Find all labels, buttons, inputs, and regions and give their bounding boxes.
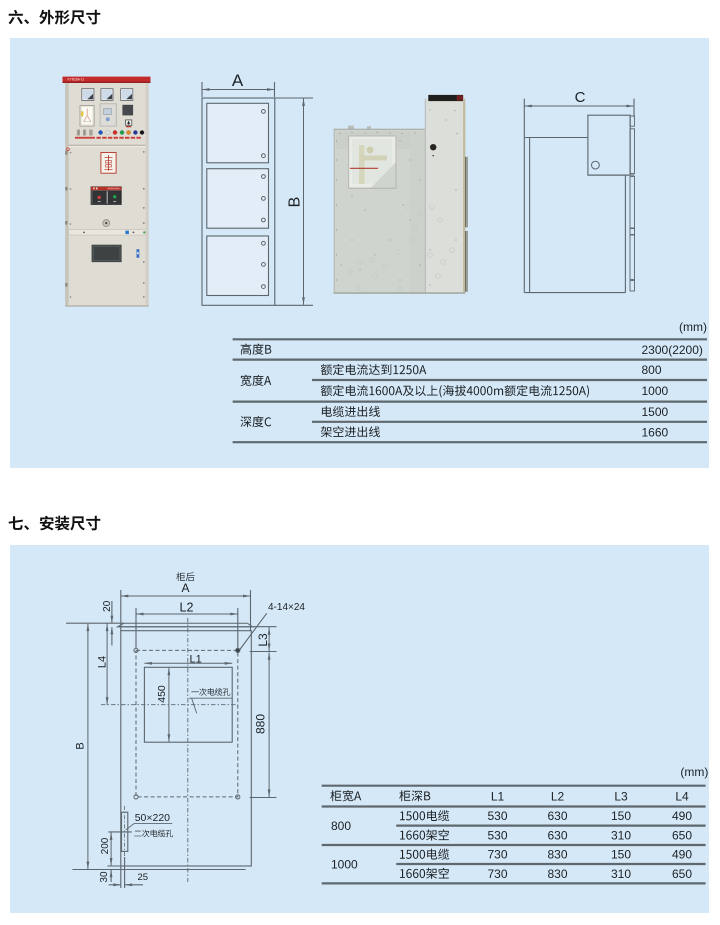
svg-text:B: B — [287, 197, 304, 208]
svg-text:50×220: 50×220 — [135, 812, 170, 824]
svg-text:30: 30 — [99, 871, 110, 883]
svg-text:20: 20 — [102, 600, 113, 612]
svg-text:800: 800 — [331, 819, 351, 833]
svg-text:25: 25 — [138, 872, 149, 883]
svg-text:4-14×24: 4-14×24 — [268, 602, 305, 613]
svg-text:730: 730 — [487, 867, 507, 881]
svg-text:(mm): (mm) — [680, 765, 708, 779]
svg-text:L2: L2 — [180, 601, 194, 615]
svg-text:1660: 1660 — [642, 425, 669, 439]
svg-text:L3: L3 — [256, 633, 270, 647]
svg-text:530: 530 — [487, 829, 507, 843]
svg-text:(mm): (mm) — [679, 320, 707, 334]
svg-text:L1: L1 — [491, 789, 505, 803]
svg-text:2300(2200): 2300(2200) — [642, 343, 703, 357]
svg-text:150: 150 — [611, 848, 631, 862]
svg-text:830: 830 — [547, 867, 567, 881]
svg-text:880: 880 — [254, 714, 268, 734]
svg-text:730: 730 — [487, 848, 507, 862]
svg-text:1000: 1000 — [642, 384, 669, 398]
svg-text:B: B — [75, 742, 87, 749]
svg-text:L1: L1 — [189, 654, 201, 666]
svg-text:1000: 1000 — [331, 857, 358, 871]
svg-text:630: 630 — [547, 829, 567, 843]
svg-text:A: A — [232, 71, 244, 90]
svg-text:150: 150 — [611, 809, 631, 823]
svg-text:310: 310 — [611, 829, 631, 843]
svg-text:830: 830 — [547, 848, 567, 862]
svg-text:310: 310 — [611, 867, 631, 881]
svg-text:630: 630 — [547, 809, 567, 823]
svg-text:L3: L3 — [614, 789, 628, 803]
svg-text:KYN28A-12: KYN28A-12 — [68, 78, 85, 82]
svg-text:450: 450 — [156, 685, 168, 703]
svg-text:200: 200 — [100, 837, 111, 854]
svg-text:A: A — [181, 581, 189, 595]
svg-text:650: 650 — [672, 867, 692, 881]
svg-text:490: 490 — [672, 809, 692, 823]
svg-text:1500: 1500 — [642, 405, 669, 419]
svg-text:650: 650 — [672, 829, 692, 843]
svg-text:C: C — [575, 89, 586, 106]
svg-text:L4: L4 — [675, 789, 689, 803]
svg-text:L4: L4 — [97, 656, 109, 668]
svg-text:800: 800 — [642, 363, 662, 377]
svg-text:L2: L2 — [551, 789, 565, 803]
svg-text:490: 490 — [672, 848, 692, 862]
svg-text:530: 530 — [487, 809, 507, 823]
